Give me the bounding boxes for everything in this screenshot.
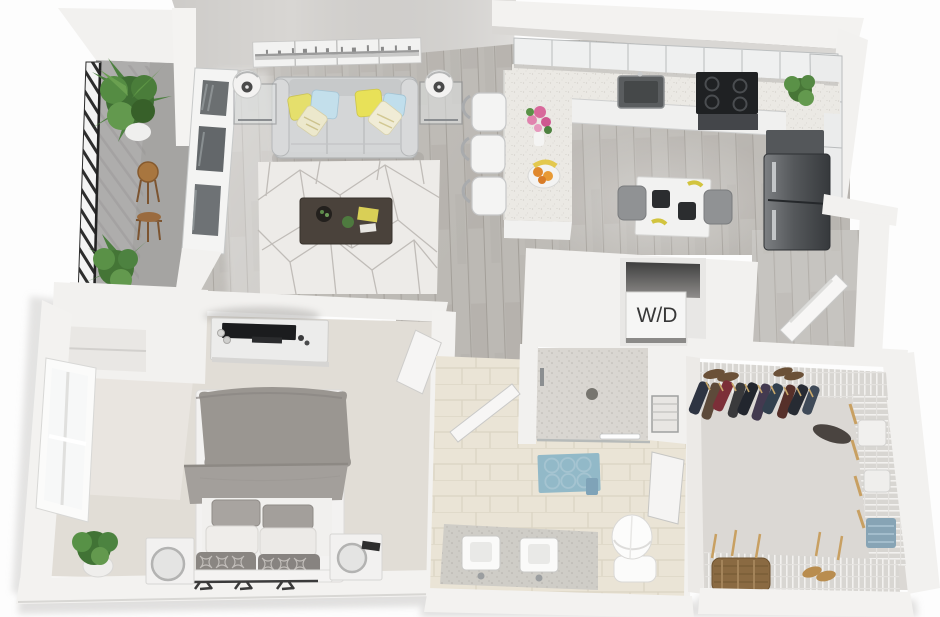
svg-text:W/D: W/D — [637, 304, 678, 327]
